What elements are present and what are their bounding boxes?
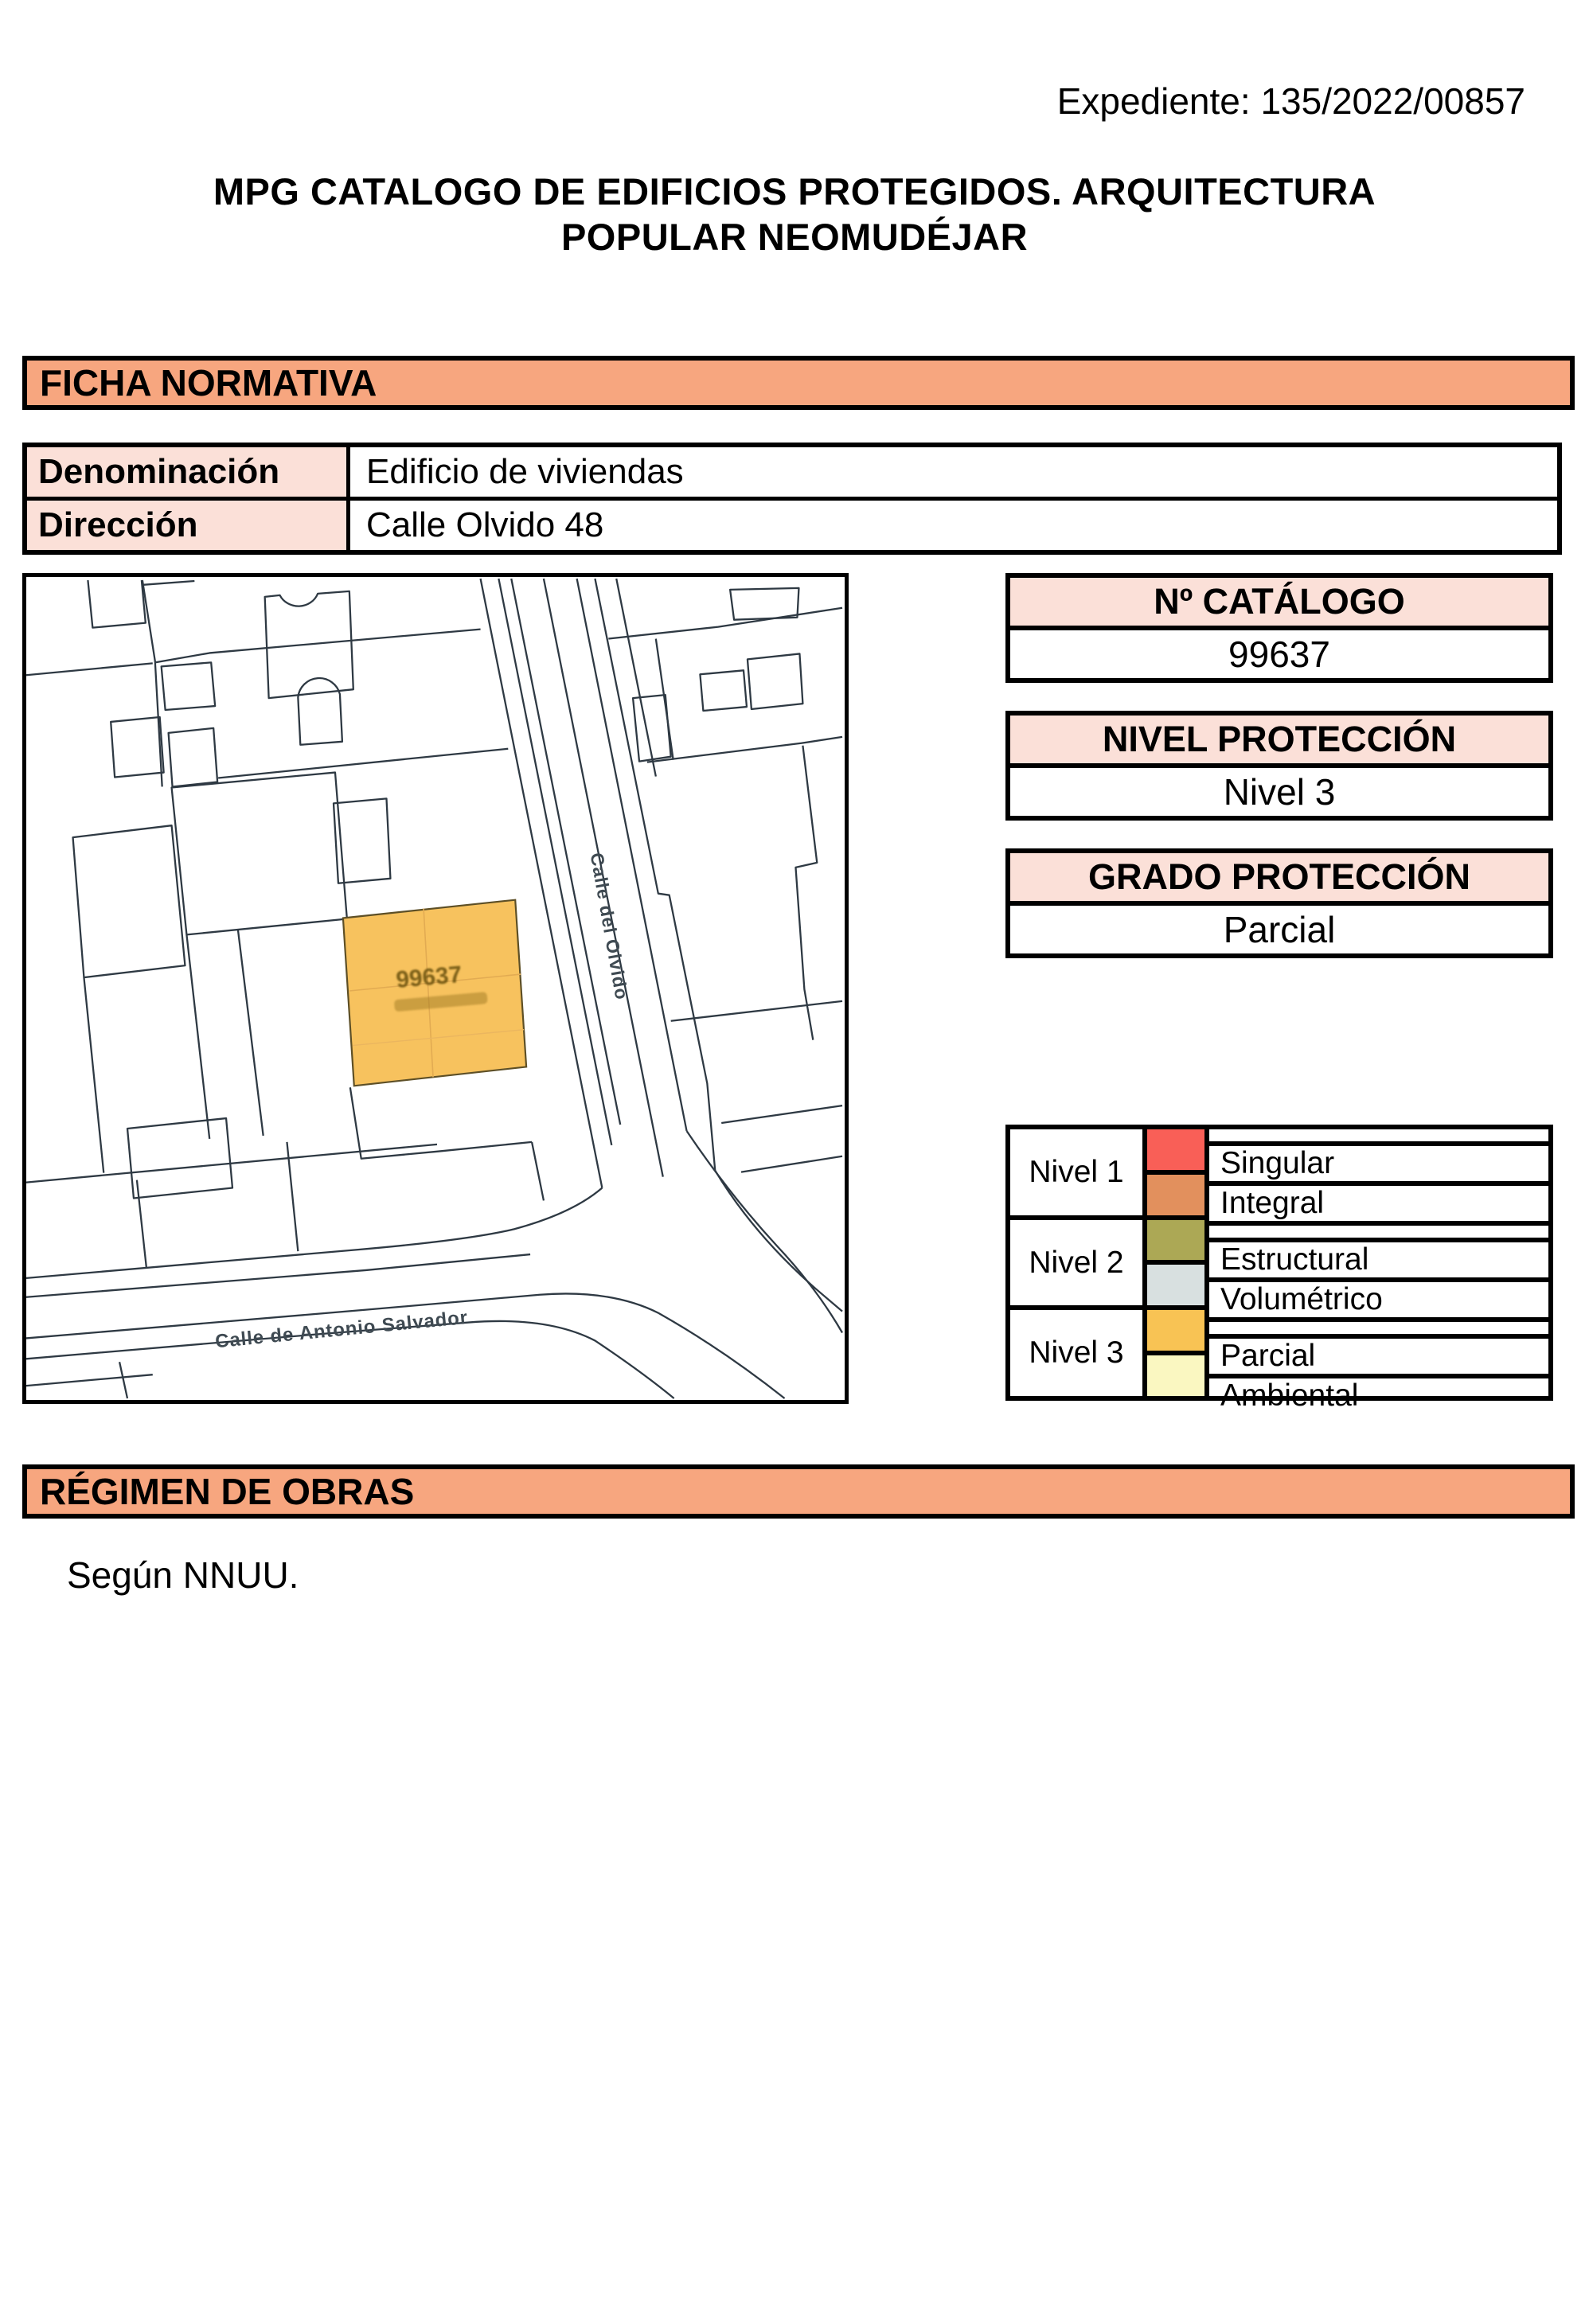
street-label-antonio-salvador: Calle de Antonio Salvador bbox=[214, 1307, 469, 1353]
identification-table: Denominación Edificio de viviendas Direc… bbox=[22, 443, 1562, 555]
protection-level-header: NIVEL PROTECCIÓN bbox=[1010, 716, 1548, 768]
protection-grade-box: GRADO PROTECCIÓN Parcial bbox=[1005, 848, 1553, 958]
regimen-text: Según NNUU. bbox=[67, 1554, 299, 1597]
cadastral-map-drawing: 99637 Calle del Olvido Calle de Antonio … bbox=[26, 577, 845, 1400]
protection-level-box: NIVEL PROTECCIÓN Nivel 3 bbox=[1005, 711, 1553, 821]
swatch-parcial bbox=[1147, 1305, 1204, 1351]
section-bar-regimen-obras: RÉGIMEN DE OBRAS bbox=[22, 1464, 1575, 1519]
page-title: MPG CATALOGO DE EDIFICIOS PROTEGIDOS. AR… bbox=[142, 169, 1447, 260]
swatch-ambiental bbox=[1147, 1351, 1204, 1396]
legend-swatch-column bbox=[1147, 1129, 1209, 1396]
legend-gap bbox=[1209, 1226, 1548, 1238]
swatch-estructural bbox=[1147, 1215, 1204, 1261]
protection-grade-value: Parcial bbox=[1010, 906, 1548, 953]
denominacion-value: Edificio de viviendas bbox=[350, 447, 1557, 497]
section-bar-ficha-label: FICHA NORMATIVA bbox=[40, 361, 377, 404]
legend-level-1: Nivel 1 bbox=[1010, 1129, 1142, 1215]
street-label-olvido: Calle del Olvido bbox=[587, 851, 633, 1001]
swatch-integral bbox=[1147, 1170, 1204, 1215]
legend-group: Parcial Ambiental bbox=[1209, 1317, 1548, 1414]
legend-entry-estructural: Estructural bbox=[1209, 1238, 1548, 1282]
legend-entry-ambiental: Ambiental bbox=[1209, 1378, 1548, 1414]
legend-gap bbox=[1209, 1129, 1548, 1141]
section-bar-regimen-label: RÉGIMEN DE OBRAS bbox=[40, 1470, 414, 1513]
direccion-value: Calle Olvido 48 bbox=[350, 501, 1557, 550]
protection-legend: Nivel 1 Nivel 2 Nivel 3 Singular Integra… bbox=[1005, 1125, 1553, 1401]
legend-entry-singular: Singular bbox=[1209, 1141, 1548, 1186]
expediente-number: Expediente: 135/2022/00857 bbox=[1057, 80, 1525, 123]
legend-entry-parcial: Parcial bbox=[1209, 1334, 1548, 1378]
direccion-label: Dirección bbox=[27, 501, 350, 550]
catalog-number-header: Nº CATÁLOGO bbox=[1010, 578, 1548, 630]
swatch-singular bbox=[1147, 1129, 1204, 1170]
legend-level-3: Nivel 3 bbox=[1010, 1305, 1142, 1396]
table-row: Dirección Calle Olvido 48 bbox=[27, 497, 1557, 550]
legend-gap bbox=[1209, 1322, 1548, 1334]
legend-group: Singular Integral bbox=[1209, 1129, 1548, 1221]
legend-entry-volumetrico: Volumétrico bbox=[1209, 1282, 1548, 1317]
legend-entry-integral: Integral bbox=[1209, 1186, 1548, 1221]
legend-level-column: Nivel 1 Nivel 2 Nivel 3 bbox=[1010, 1129, 1147, 1396]
catalog-number-box: Nº CATÁLOGO 99637 bbox=[1005, 573, 1553, 683]
legend-group: Estructural Volumétrico bbox=[1209, 1221, 1548, 1317]
section-bar-ficha-normativa: FICHA NORMATIVA bbox=[22, 356, 1575, 410]
denominacion-label: Denominación bbox=[27, 447, 350, 497]
protection-level-value: Nivel 3 bbox=[1010, 768, 1548, 816]
cadastral-map: 99637 Calle del Olvido Calle de Antonio … bbox=[22, 573, 849, 1404]
highlighted-parcel: 99637 bbox=[343, 900, 526, 1086]
legend-level-2: Nivel 2 bbox=[1010, 1215, 1142, 1306]
swatch-volumetrico bbox=[1147, 1260, 1204, 1305]
legend-text-column: Singular Integral Estructural Volumétric… bbox=[1209, 1129, 1548, 1396]
table-row: Denominación Edificio de viviendas bbox=[27, 447, 1557, 497]
catalog-number-value: 99637 bbox=[1010, 630, 1548, 678]
protection-grade-header: GRADO PROTECCIÓN bbox=[1010, 853, 1548, 906]
